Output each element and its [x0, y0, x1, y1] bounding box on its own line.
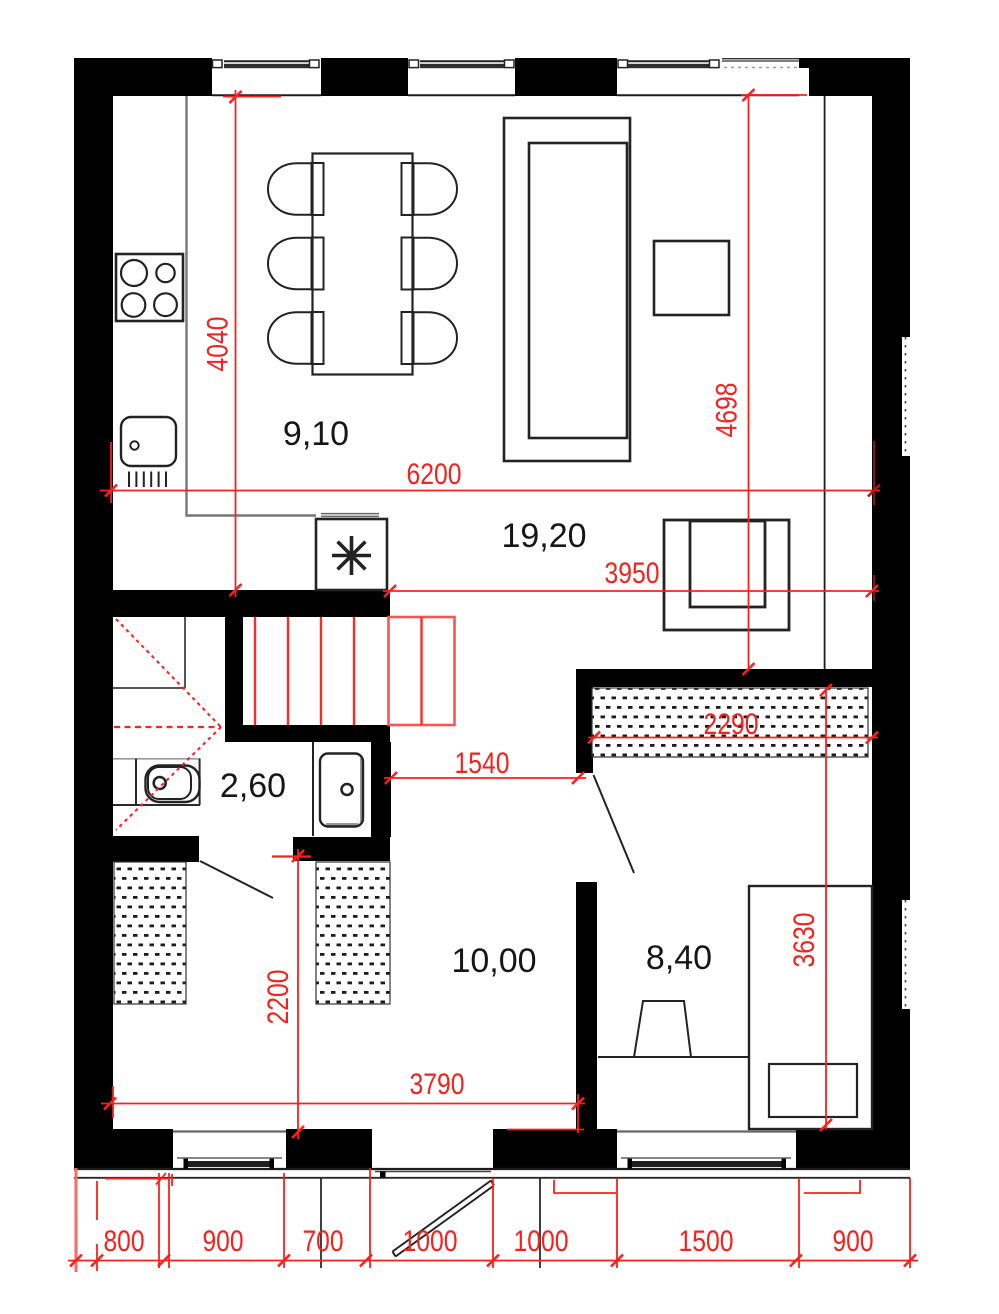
- svg-text:3790: 3790: [410, 1068, 465, 1101]
- svg-text:10,00: 10,00: [451, 942, 536, 980]
- svg-text:900: 900: [203, 1225, 244, 1258]
- svg-text:1540: 1540: [455, 747, 510, 780]
- svg-text:3630: 3630: [788, 913, 821, 968]
- svg-text:1500: 1500: [679, 1225, 734, 1258]
- svg-text:9,10: 9,10: [283, 415, 349, 453]
- svg-text:19,20: 19,20: [501, 517, 586, 555]
- svg-text:3950: 3950: [605, 557, 660, 590]
- svg-text:6200: 6200: [407, 458, 462, 491]
- svg-text:4698: 4698: [711, 383, 744, 438]
- svg-text:1000: 1000: [403, 1225, 458, 1258]
- svg-text:800: 800: [104, 1225, 145, 1258]
- svg-text:2290: 2290: [704, 708, 759, 741]
- svg-text:2200: 2200: [262, 970, 295, 1025]
- svg-text:8,40: 8,40: [646, 939, 712, 977]
- svg-text:2,60: 2,60: [220, 767, 286, 805]
- svg-text:1000: 1000: [514, 1225, 569, 1258]
- svg-text:700: 700: [303, 1225, 344, 1258]
- svg-text:900: 900: [833, 1225, 874, 1258]
- svg-text:4040: 4040: [202, 317, 235, 372]
